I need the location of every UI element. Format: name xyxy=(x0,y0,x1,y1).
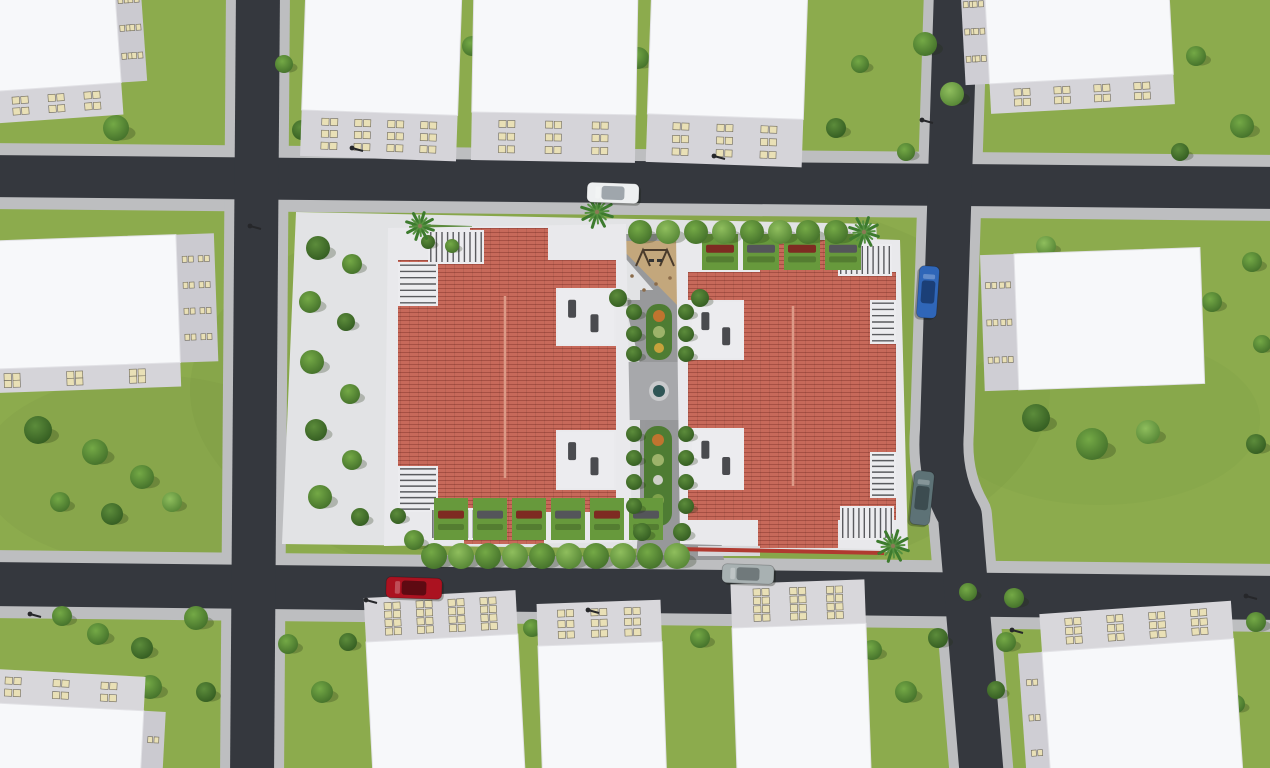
complex-shape xyxy=(652,454,664,466)
roof-deck xyxy=(558,432,614,488)
building-bottom-a xyxy=(364,590,525,768)
residential-complex xyxy=(282,212,908,560)
building-top-c xyxy=(646,0,808,167)
pergola-terrace xyxy=(870,300,896,344)
complex-shape xyxy=(654,343,664,353)
car-blue xyxy=(914,265,940,320)
complex-shape xyxy=(652,434,664,446)
building-bottom-b xyxy=(537,600,667,768)
building-mid-right xyxy=(980,248,1205,392)
car-silver xyxy=(722,564,777,587)
pergola-terrace xyxy=(398,466,438,512)
car-red xyxy=(386,577,445,602)
building-top-b xyxy=(471,0,638,163)
right-building-roof-bottom-wing-texture xyxy=(758,510,838,548)
car-white xyxy=(587,182,642,206)
building-bottom-right xyxy=(1015,601,1242,768)
pergola-terrace xyxy=(398,262,438,306)
building-top-right xyxy=(960,0,1175,115)
pergola-terrace xyxy=(870,452,896,498)
complex-shape xyxy=(653,326,665,338)
road-vertical-left xyxy=(252,0,258,768)
roof-deck xyxy=(558,290,614,344)
fountain-water xyxy=(653,385,665,397)
aerial-render xyxy=(0,0,1270,768)
complex-shape xyxy=(653,310,665,322)
road-horizontal-bottom xyxy=(0,584,1270,598)
complex-shape xyxy=(653,475,663,485)
building-bottom-c xyxy=(730,579,871,768)
building-bottom-left xyxy=(0,668,168,768)
roof-deck xyxy=(692,430,744,490)
scene-svg xyxy=(0,0,1270,768)
building-top-a xyxy=(300,0,462,161)
roof-deck xyxy=(692,302,744,358)
